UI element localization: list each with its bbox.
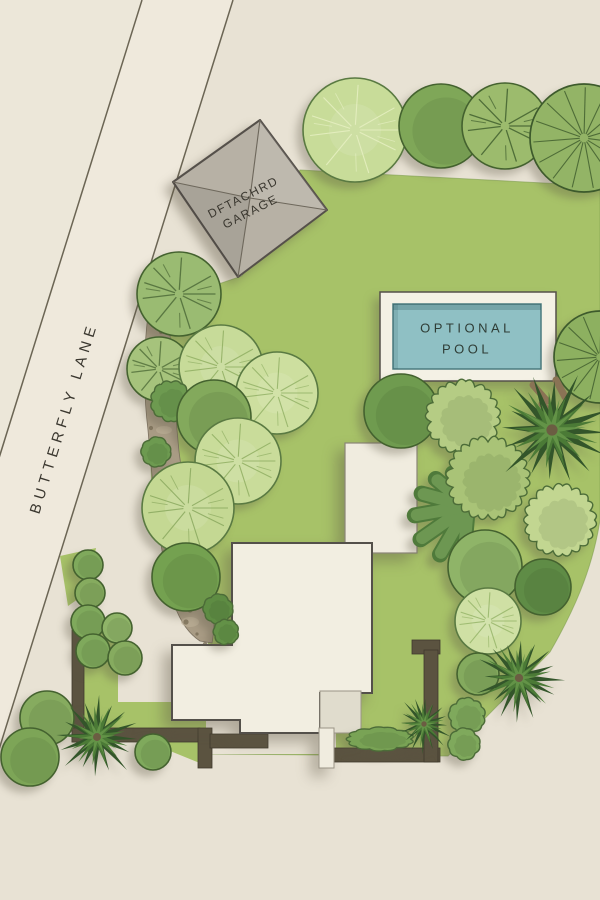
shrub bbox=[346, 727, 413, 751]
shrub bbox=[213, 619, 238, 644]
patio-pad bbox=[345, 443, 417, 553]
rear-step bbox=[320, 691, 361, 733]
pool-label-line1: OPTIONAL bbox=[420, 318, 514, 339]
pool-label-line2: POOL bbox=[420, 339, 514, 360]
tree bbox=[71, 605, 105, 639]
tree bbox=[135, 734, 171, 770]
pool-water-shade-top bbox=[393, 304, 541, 310]
tree bbox=[76, 634, 110, 668]
tree bbox=[1, 728, 59, 786]
tree bbox=[75, 578, 105, 608]
tree bbox=[73, 550, 103, 580]
tree bbox=[303, 78, 407, 182]
site-plan-drawing bbox=[0, 0, 600, 900]
wall-below-house bbox=[210, 734, 268, 748]
pool-label: OPTIONAL POOL bbox=[420, 318, 514, 361]
tree bbox=[515, 559, 571, 615]
tree bbox=[108, 641, 142, 675]
site-plan: BUTTERFLY LANE DFTACHRD GARAGE OPTIONAL … bbox=[0, 0, 600, 900]
tree bbox=[455, 588, 521, 654]
tree bbox=[142, 462, 234, 554]
pool-water-shade-left bbox=[393, 304, 398, 369]
tree bbox=[102, 613, 132, 643]
walkway bbox=[319, 728, 334, 768]
tree bbox=[137, 252, 221, 336]
